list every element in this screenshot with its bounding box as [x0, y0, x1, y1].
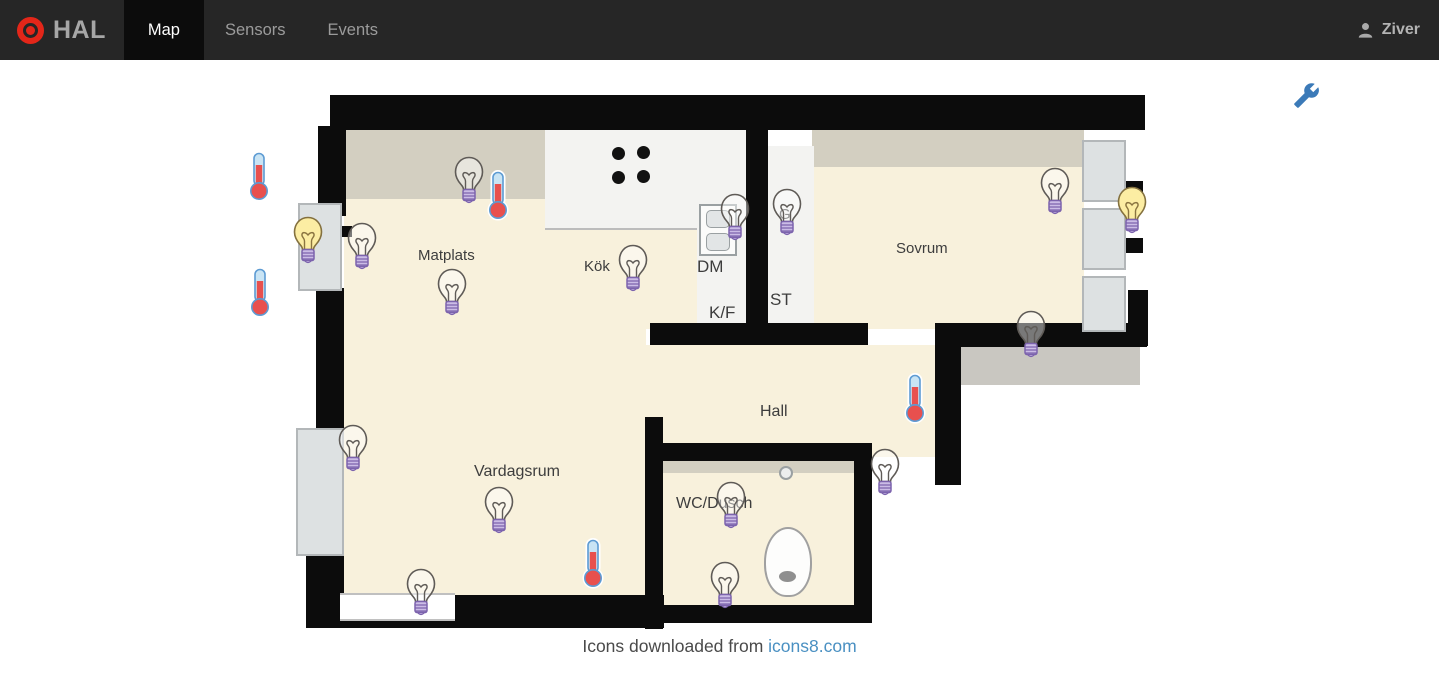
light-bulb-icon[interactable] — [868, 447, 902, 499]
brand-title: HAL — [53, 16, 106, 45]
wall-face — [812, 129, 1084, 167]
room-label-hall: Hall — [760, 403, 788, 421]
shower-head — [779, 466, 793, 480]
light-bulb-icon[interactable] — [336, 423, 370, 475]
light-bulb-icon[interactable] — [404, 567, 438, 619]
stove-burner — [637, 146, 650, 159]
room-label-dm: DM — [697, 257, 723, 277]
thermometer-icon[interactable] — [485, 169, 511, 221]
wall-segment — [316, 288, 344, 430]
room-floor — [646, 345, 935, 457]
room-label-matplats: Matplats — [418, 247, 475, 264]
tab-map[interactable]: Map — [124, 0, 204, 60]
wall-segment — [650, 443, 870, 461]
thermometer-icon[interactable] — [902, 372, 928, 424]
target-icon — [17, 17, 44, 44]
caption-text: Icons downloaded from — [582, 636, 768, 656]
wrench-icon — [1293, 82, 1320, 109]
light-bulb-icon[interactable] — [482, 485, 516, 537]
stove-burner — [612, 147, 625, 160]
thermometer-icon[interactable] — [580, 537, 606, 589]
room-label-k-k: Kök — [584, 258, 610, 275]
light-bulb-icon[interactable] — [1038, 166, 1072, 218]
wall-segment — [660, 605, 872, 623]
stove-burner — [637, 170, 650, 183]
room-label-k-f: K/F — [709, 303, 735, 323]
light-bulb-icon[interactable] — [1014, 309, 1048, 361]
room-label-st: ST — [770, 290, 792, 310]
room-label-sovrum: Sovrum — [896, 240, 948, 257]
stove-burner — [612, 171, 625, 184]
light-bulb-icon[interactable] — [616, 243, 650, 295]
light-bulb-icon[interactable] — [708, 560, 742, 612]
person-icon — [1356, 21, 1375, 40]
light-bulb-icon[interactable] — [714, 480, 748, 532]
wall-segment — [935, 323, 961, 485]
toilet — [764, 527, 812, 597]
user-menu[interactable]: Ziver — [1337, 0, 1439, 60]
tab-sensors[interactable]: Sensors — [204, 0, 307, 60]
light-bulb-icon[interactable] — [345, 221, 379, 273]
room-floor — [663, 459, 855, 608]
map-settings-button[interactable] — [1293, 82, 1323, 112]
app-window: HAL Map Sensors Events Ziver — [0, 0, 1439, 675]
light-bulb-icon[interactable] — [291, 215, 325, 267]
light-bulb-icon[interactable] — [452, 155, 486, 207]
light-bulb-icon[interactable] — [718, 192, 752, 244]
tab-events[interactable]: Events — [307, 0, 399, 60]
wall-segment — [650, 323, 868, 345]
brand-logo[interactable]: HAL — [0, 0, 124, 60]
window — [1082, 276, 1126, 332]
thermometer-icon[interactable] — [246, 150, 272, 202]
light-bulb-icon[interactable] — [770, 187, 804, 239]
wall-segment — [1098, 330, 1148, 346]
attribution-caption: Icons downloaded from icons8.com — [0, 636, 1439, 657]
wall-segment — [330, 95, 1145, 130]
wall-face — [663, 459, 855, 473]
room-label-vardagsrum: Vardagsrum — [474, 463, 560, 481]
thermometer-icon[interactable] — [247, 266, 273, 318]
light-bulb-icon[interactable] — [1115, 185, 1149, 237]
icons8-link[interactable]: icons8.com — [768, 636, 857, 656]
light-bulb-icon[interactable] — [435, 267, 469, 319]
top-navbar: HAL Map Sensors Events Ziver — [0, 0, 1439, 60]
nav-tabs: Map Sensors Events — [124, 0, 399, 60]
user-name: Ziver — [1382, 21, 1420, 39]
